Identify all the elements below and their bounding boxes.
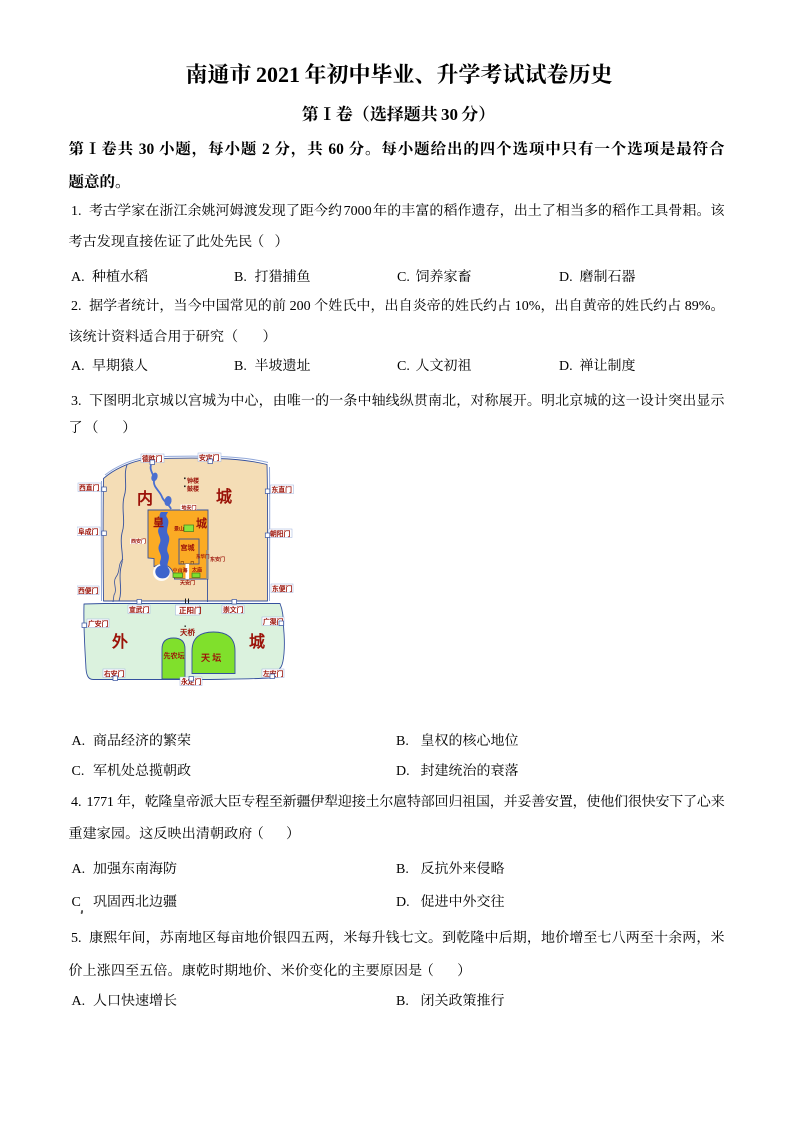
svg-text:西便门: 西便门 bbox=[78, 585, 99, 595]
svg-text:城: 城 bbox=[216, 484, 232, 507]
svg-text:外: 外 bbox=[111, 629, 128, 652]
svg-text:东华门: 东华门 bbox=[196, 553, 210, 560]
svg-text:宣武门: 宣武门 bbox=[129, 604, 150, 614]
svg-text:宫城: 宫城 bbox=[181, 543, 195, 553]
svg-text:鼓楼: 鼓楼 bbox=[187, 484, 199, 493]
svg-text:中南海: 中南海 bbox=[173, 567, 188, 574]
svg-text:先农坛: 先农坛 bbox=[164, 651, 185, 661]
svg-text:城: 城 bbox=[196, 515, 207, 531]
svg-text:西安门: 西安门 bbox=[131, 538, 146, 545]
svg-text:城: 城 bbox=[249, 629, 265, 652]
svg-text:太庙: 太庙 bbox=[191, 567, 202, 574]
svg-text:景山: 景山 bbox=[174, 526, 184, 533]
svg-text:地安门: 地安门 bbox=[182, 505, 197, 512]
svg-text:崇文门: 崇文门 bbox=[223, 604, 244, 614]
svg-text:天桥: 天桥 bbox=[180, 627, 195, 638]
svg-text:东安门: 东安门 bbox=[210, 556, 225, 563]
svg-text:东直门: 东直门 bbox=[272, 484, 293, 494]
svg-text:东便门: 东便门 bbox=[272, 583, 293, 593]
svg-text:广安门: 广安门 bbox=[88, 618, 109, 628]
svg-text:天 坛: 天 坛 bbox=[201, 651, 221, 664]
svg-text:天安门: 天安门 bbox=[180, 580, 195, 587]
svg-text:朝阳门: 朝阳门 bbox=[270, 528, 291, 538]
svg-text:内: 内 bbox=[137, 486, 153, 509]
svg-text:皇: 皇 bbox=[153, 514, 164, 530]
svg-text:正阳门: 正阳门 bbox=[179, 605, 202, 616]
svg-text:西直门: 西直门 bbox=[79, 482, 100, 492]
svg-text:阜成门: 阜成门 bbox=[78, 526, 99, 536]
